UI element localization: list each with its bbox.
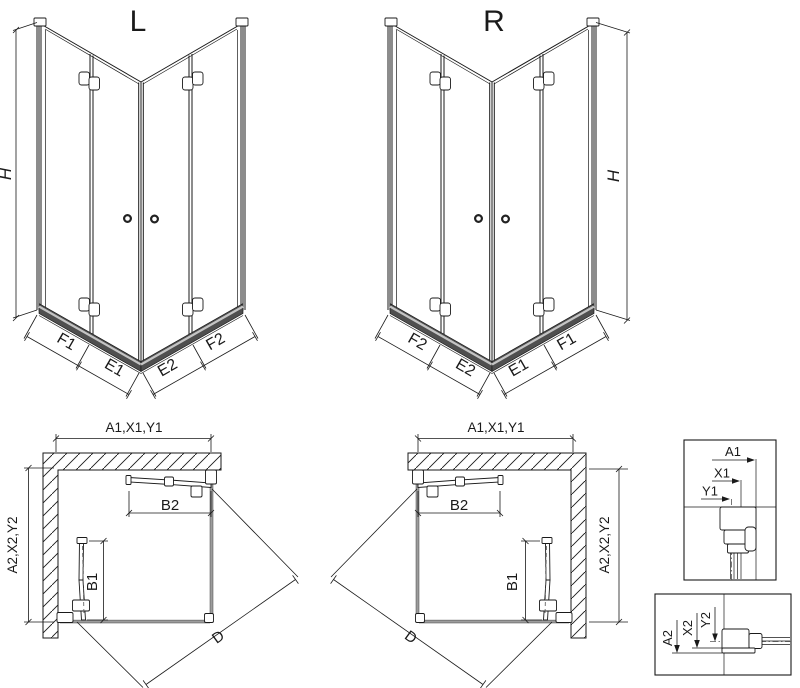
r3d-height-label: H (604, 169, 623, 182)
left-plan-b2-label: B2 (161, 497, 179, 514)
l3d-title: L (130, 5, 147, 38)
right-plan-top-dim-label: A1,X1,Y1 (467, 420, 524, 435)
right-plan-b1-label: B1 (504, 573, 521, 591)
detail-top-y1-label: Y1 (702, 484, 718, 499)
detail-bottom-y2-label: Y2 (698, 612, 713, 628)
drawing-canvas: L H F1 E1 E2 F2 R H F2 E2 E1 F1 A1, (0, 0, 800, 688)
page-background (0, 0, 800, 688)
left-plan-b1-label: B1 (84, 573, 101, 591)
detail-box-top: A1 X1 Y1 (684, 440, 776, 580)
right-plan-side-dim-label: A2,X2,Y2 (597, 516, 612, 573)
right-plan-b2-label: B2 (450, 497, 468, 514)
left-plan-side-dim-label: A2,X2,Y2 (5, 516, 20, 573)
l3d-height-label: H (0, 167, 15, 180)
detail-top-x1-label: X1 (714, 466, 730, 481)
detail-bottom-a2-label: A2 (660, 630, 675, 646)
detail-bottom-x2-label: X2 (680, 620, 695, 636)
shower-enclosure-technical-drawing: L H F1 E1 E2 F2 R H F2 E2 E1 F1 A1, (0, 0, 800, 688)
r3d-title: R (483, 5, 505, 38)
detail-box-bottom: A2 X2 Y2 (655, 594, 791, 675)
left-plan-top-dim-label: A1,X1,Y1 (105, 420, 162, 435)
detail-top-a1-label: A1 (725, 444, 741, 459)
